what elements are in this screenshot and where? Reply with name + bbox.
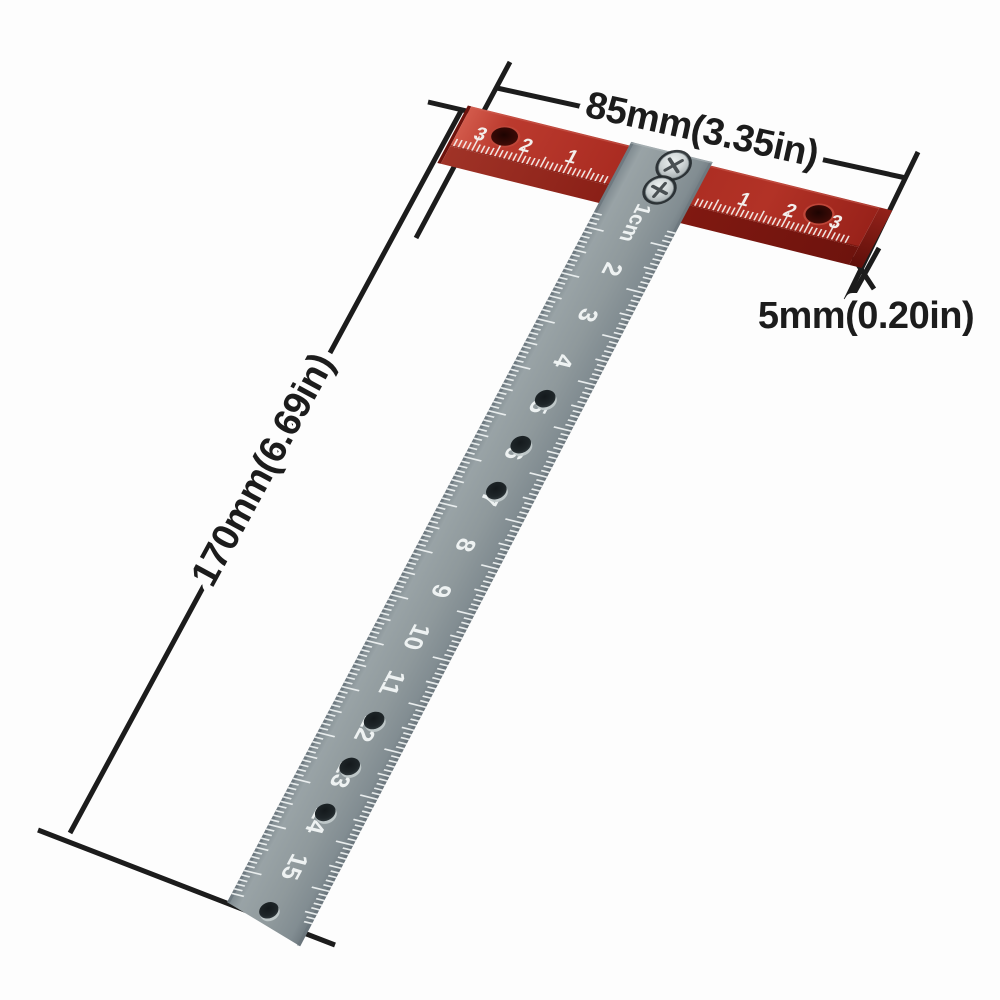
product-image: 85mm(3.35in) 85mm(3.35in) 170mm(6.69in) … xyxy=(0,0,1000,1000)
label-5mm-text: 5mm(0.20in) xyxy=(758,295,974,337)
label-5mm: 5mm(0.20in) 5mm(0.20in) xyxy=(758,295,974,337)
t-square-illustration: 85mm(3.35in) 85mm(3.35in) 170mm(6.69in) … xyxy=(0,0,1000,1000)
